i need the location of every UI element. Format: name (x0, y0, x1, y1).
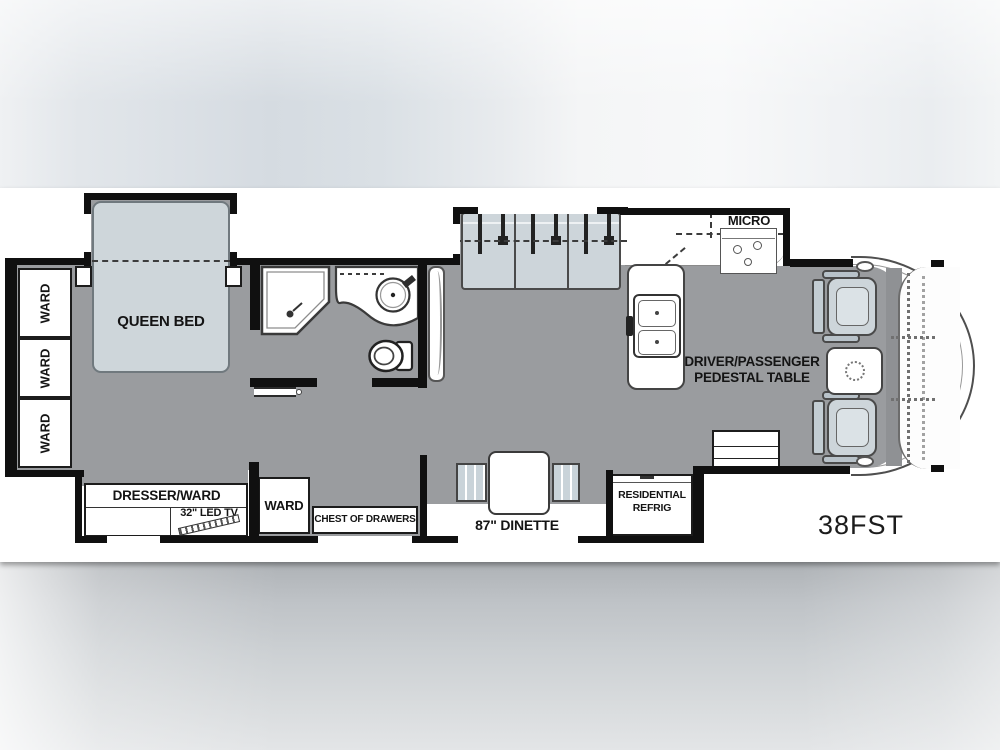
bath-wall-left (250, 262, 260, 330)
wall-bedroom-slide-right (249, 462, 259, 540)
wardrobe-1: WARD (18, 268, 72, 338)
sofa-slide-window-top (478, 207, 597, 214)
bedroom-slide-wall-bottom (75, 536, 255, 543)
micro-label: MICRO (720, 214, 778, 229)
seat-belt-buckle (501, 214, 505, 238)
range-shelf-line (722, 238, 775, 239)
driver-seat-back (812, 279, 825, 334)
kitchen-faucet (626, 316, 633, 336)
bath-wall-bottom-left (250, 378, 317, 387)
nightstand-left (75, 266, 92, 287)
burner-2 (753, 241, 762, 250)
dinette-label: 87" DINETTE (437, 518, 597, 534)
refrigerator-label-line1: RESIDENTIAL (618, 489, 686, 501)
seat-belt-buckle (554, 214, 558, 238)
ward-small-label: WARD (258, 499, 310, 514)
shower-head (287, 311, 294, 318)
passenger-seat-cushion (836, 408, 869, 447)
queen-bed-label: QUEEN BED (92, 314, 230, 331)
dresser-ward-label: DRESSER/WARD (85, 488, 248, 503)
wardrobe-3: WARD (18, 398, 72, 468)
refrigerator-handle (640, 476, 654, 479)
bedroom-slide-window-bottom (107, 536, 160, 543)
driver-seat-armrest-top (822, 270, 860, 279)
seat-belt-buckle (607, 214, 611, 238)
pocket-door (254, 387, 296, 397)
rv-floorplan: MICRO QUEEN BED (0, 0, 1000, 750)
driver-seat-armrest-bottom (822, 334, 860, 343)
wall-rear (5, 258, 17, 477)
wall-bottom-cab (697, 466, 850, 474)
refrigerator-label: RESIDENTIAL REFRIG (613, 489, 691, 515)
wall-top-cab (790, 259, 853, 267)
sofa-divider-1 (514, 212, 516, 290)
wardrobe-3-label: WARD (38, 413, 53, 453)
dinette-slide-wall-right (606, 470, 613, 536)
seat-belt (478, 214, 482, 254)
sofa-slide-window-left (453, 224, 460, 254)
cab-dotted-line-lower (891, 398, 935, 401)
bath-sink-drain (391, 293, 395, 297)
overhead-cabinet-dash-vertical (710, 212, 712, 238)
driver-seat-cushion (836, 287, 869, 326)
pedestal-table-label: DRIVER/PASSENGER PEDESTAL TABLE (671, 354, 833, 386)
wall-top-kitchen (620, 208, 790, 215)
wardrobe-2: WARD (18, 338, 72, 398)
wall-refrig-right (693, 466, 704, 543)
sink-drain-bottom (655, 340, 659, 344)
entry-step-line-1 (714, 446, 778, 447)
wardrobe-1-label: WARD (38, 283, 53, 323)
screenshot-canvas: MICRO QUEEN BED (0, 0, 1000, 750)
refrigerator-label-line2: REFRIG (633, 502, 671, 514)
dinette-slide-wall-left (420, 455, 427, 536)
bed-slide-window-right (230, 214, 237, 252)
wall-bottom-window-dinette (458, 536, 578, 543)
cab-dotted-line-upper (891, 336, 935, 339)
sofa-slide-travel-line (455, 240, 627, 242)
bedroom-slide-wall-left (75, 470, 82, 543)
burner-3 (744, 258, 752, 266)
wall-bottom-bedroom-left (5, 470, 84, 477)
burner-1 (733, 245, 742, 254)
wall-kitchen-right (783, 208, 790, 266)
driver-seat-swivel-base (856, 261, 874, 272)
pedestal-label-line1: DRIVER/PASSENGER (684, 354, 819, 369)
bathroom-door-arc (433, 271, 442, 375)
shower (262, 267, 329, 334)
wall-bottom-window-chest (318, 536, 412, 543)
dinette-bench-left (456, 463, 487, 502)
bath-wall-bottom-right (372, 378, 427, 387)
queen-bed (92, 201, 230, 373)
pedestal-label-line2: PEDESTAL TABLE (694, 370, 810, 385)
cab-bunk-dotted-line-1 (907, 273, 910, 463)
windshield-pillar-tick-bottom (931, 465, 944, 472)
refrigerator-top-line (613, 482, 691, 483)
cab-bunk-dotted-line-2 (922, 276, 925, 460)
bed-slide-window-left (84, 214, 91, 252)
passenger-seat-back (812, 400, 825, 455)
pocket-door-end (296, 389, 302, 395)
windshield-pillar-tick-top (931, 260, 944, 267)
chest-of-drawers-label: CHEST OF DRAWERS (313, 514, 417, 525)
passenger-seat-armrest-bottom (822, 455, 860, 464)
sofa-back-line (463, 222, 619, 224)
entry-step-line-2 (714, 458, 778, 459)
passenger-seat-swivel-base (856, 456, 874, 467)
dinette-bench-right (552, 463, 580, 502)
bed-slide-wall-top (84, 193, 237, 200)
wall-top-bedroom-left (5, 258, 85, 265)
sofa-divider-2 (567, 212, 569, 290)
range-microwave (720, 228, 777, 274)
seat-belt (531, 214, 535, 254)
bath-wall-right (418, 262, 427, 388)
wardrobe-2-label: WARD (38, 348, 53, 388)
bathroom-door (428, 266, 445, 382)
seat-belt (584, 214, 588, 254)
bed-slide-travel-line (92, 260, 230, 262)
nightstand-right (225, 266, 242, 287)
model-label: 38FST (806, 510, 916, 541)
sink-drain-top (655, 311, 659, 315)
dinette-table (488, 451, 550, 515)
pedestal-table-base (845, 361, 865, 381)
